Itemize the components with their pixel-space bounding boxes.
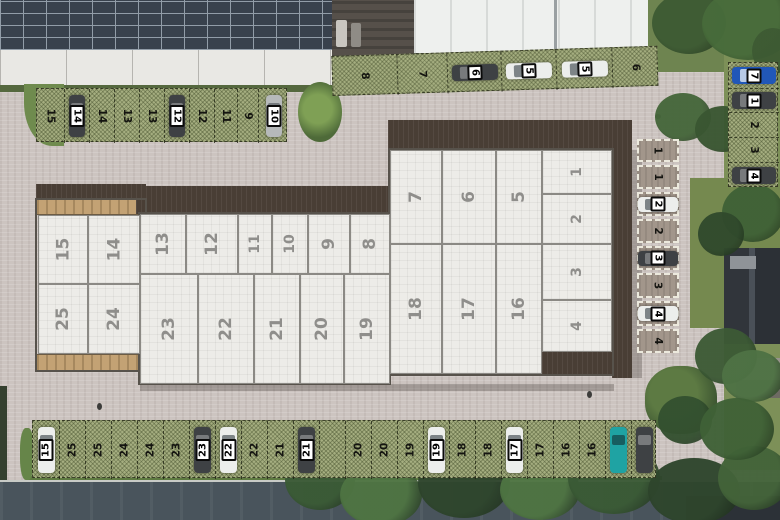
parking-space: 3 (637, 273, 679, 298)
car-windshield (638, 435, 651, 445)
car (636, 427, 653, 473)
parking-space: 7 (729, 63, 779, 88)
tree (698, 212, 744, 256)
yard-vehicle (336, 20, 347, 47)
parking-space: 16 (579, 421, 605, 479)
top-left-row: 1514141313121211910 (36, 88, 287, 142)
parking-space: 18 (475, 421, 501, 479)
unit-cell: 4 (542, 300, 612, 352)
car: 5 (561, 60, 607, 77)
house-chimney (730, 256, 756, 269)
car: 6 (451, 64, 497, 81)
building-side-spaces: 11223344 (636, 138, 680, 355)
car-number-badge: 4 (747, 168, 762, 183)
car-number-badge: 21 (299, 439, 314, 461)
car-number-badge: 4 (651, 306, 666, 321)
pedestrian (587, 391, 592, 398)
car: 23 (194, 427, 211, 473)
car-number-badge: 5 (521, 63, 536, 78)
car: 2 (638, 197, 678, 212)
parking-space: 23 (163, 421, 189, 479)
car: 21 (298, 427, 315, 473)
site-plan-aerial-view: 1514252413121110982322212019765181716123… (0, 0, 780, 520)
car-windshield (612, 435, 625, 445)
parking-space: 21 (293, 421, 319, 479)
parking-space-number: 1 (648, 158, 668, 196)
unit-number: 4 (552, 292, 602, 360)
parking-space: 23 (189, 421, 215, 479)
right-column: 71234 (728, 62, 778, 187)
parking-space-number: 6 (615, 44, 656, 91)
top-right-row: 876556 (331, 46, 658, 96)
parking-space: 8 (332, 55, 397, 97)
unit-cell: 13 (140, 214, 186, 274)
car (610, 427, 627, 473)
car-number-badge: 23 (195, 439, 210, 461)
car: 7 (732, 67, 776, 84)
parking-space: 19 (397, 421, 423, 479)
parking-space: 7 (396, 53, 447, 95)
parking-space: 13 (139, 89, 164, 143)
unit-cell: 16 (496, 244, 542, 374)
car-number-badge: 3 (651, 251, 666, 266)
parking-space-number: 4 (648, 322, 668, 360)
car: 5 (506, 62, 552, 79)
tree (722, 350, 780, 402)
car-number-badge: 2 (651, 197, 666, 212)
parking-space-number: 7 (402, 49, 444, 99)
left-block-roof-ridge (36, 184, 146, 200)
car: 10 (266, 95, 282, 137)
unit-cell: 2 (542, 194, 612, 244)
building-shadow-bottom (140, 384, 614, 391)
car-number-badge: 7 (747, 68, 762, 83)
parking-space: 15 (37, 89, 64, 143)
solar-panel-roof (0, 0, 332, 50)
parking-space (605, 421, 631, 479)
car-number-badge: 6 (467, 65, 482, 80)
car: 4 (732, 167, 776, 184)
car: 3 (638, 251, 678, 266)
left-block-loading-strip-top (36, 199, 146, 215)
parking-space-number: 3 (648, 267, 669, 305)
pedestrian (97, 403, 102, 410)
parking-space: 10 (258, 89, 288, 143)
tree (700, 398, 774, 460)
solar-building-white-band (0, 50, 332, 87)
parking-space (631, 421, 657, 479)
car: 4 (638, 306, 678, 321)
unit-cell: 5 (496, 150, 542, 244)
parking-space: 2 (637, 219, 679, 243)
car-number-badge: 10 (266, 105, 281, 127)
parking-space: 6 (611, 47, 659, 88)
parking-space: 5 (555, 48, 612, 90)
parking-space: 4 (637, 329, 679, 353)
right-block-roof-edge (612, 120, 632, 378)
parking-space: 6 (446, 52, 501, 94)
middle-block-roof-ridge (136, 186, 390, 214)
car-number-badge: 5 (577, 61, 592, 76)
parking-space-number: 8 (344, 43, 386, 108)
parking-space: 4 (729, 162, 779, 188)
parking-space: 5 (500, 50, 556, 92)
parking-space-number: 2 (648, 212, 668, 250)
parking-space: 1 (637, 165, 679, 189)
parking-space: 21 (267, 421, 293, 479)
unit-cell: 8 (350, 214, 390, 274)
parking-space: 3 (729, 137, 779, 162)
bottom-row: 1525252424232322222121202019191818171716… (32, 420, 656, 478)
parking-space: 9 (237, 89, 258, 143)
unit-cell: 14 (88, 215, 140, 284)
